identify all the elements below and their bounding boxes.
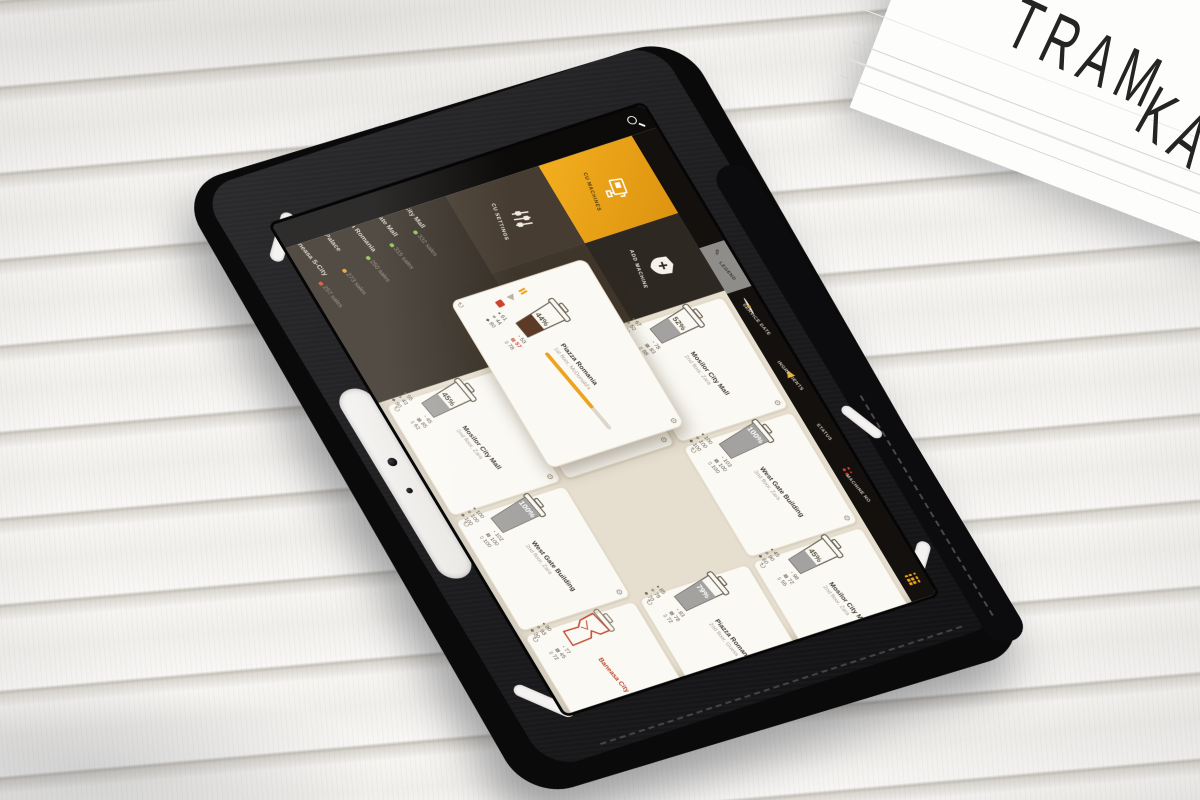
pause-icon[interactable] xyxy=(518,287,528,295)
tab-content: ADD MACHINE xyxy=(628,245,682,290)
legend-label: STATUS xyxy=(816,423,834,442)
search-lens xyxy=(625,115,638,126)
card-location: 1st floor, McDonald's xyxy=(552,347,619,423)
stop-icon[interactable] xyxy=(495,299,505,307)
camera-flash xyxy=(405,487,414,494)
status-dot xyxy=(342,268,347,272)
tab-content: CU SETTINGS xyxy=(489,199,540,241)
status-dot xyxy=(318,281,323,285)
tab-content: CU MACHINES xyxy=(581,167,635,211)
photo-scene: TRAMKAM 1 xyxy=(0,0,1200,800)
gear-icon[interactable]: ⚙ xyxy=(684,703,695,712)
card-machine-name: Piazza Romania xyxy=(713,618,781,695)
play-icon[interactable] xyxy=(506,293,517,302)
pencil-icon: ✎ xyxy=(711,248,723,258)
legend-label: MACHINE NO xyxy=(845,474,872,504)
search-icon[interactable] xyxy=(625,114,644,129)
search-handle xyxy=(639,123,646,127)
gear-icon[interactable]: ⚙ xyxy=(669,417,680,426)
card-machine-name: Mosilor City Mall xyxy=(826,581,894,658)
status-dot xyxy=(365,256,370,260)
refresh-icon[interactable]: ↻ xyxy=(455,301,465,311)
add-pin-icon xyxy=(641,254,679,279)
sliders-icon xyxy=(502,207,538,231)
card-location: 2nd floor, Zara xyxy=(820,585,887,661)
gear-icon[interactable]: ⚙ xyxy=(797,666,808,675)
card-location: 2nd floor, Guess xyxy=(707,622,774,698)
coffee-machine-icon xyxy=(594,176,632,202)
camera-lens xyxy=(386,457,399,468)
card-text: Piazza Romania1st floor, McDonald's xyxy=(542,340,626,427)
card-text: Baneasa City Mall xyxy=(593,653,664,714)
card-text: Mosilor City Mall2nd floor, Zara xyxy=(818,578,895,661)
grid-dots-icon[interactable] xyxy=(904,572,921,586)
status-dot xyxy=(389,243,394,247)
legend-tab-label: LEGEND xyxy=(718,261,737,281)
card-text: Piazza Romania2nd floor, Guess xyxy=(704,615,781,698)
card-machine-name: Baneasa City Mall xyxy=(596,657,664,715)
gear-icon[interactable]: ⚙ xyxy=(911,629,922,638)
